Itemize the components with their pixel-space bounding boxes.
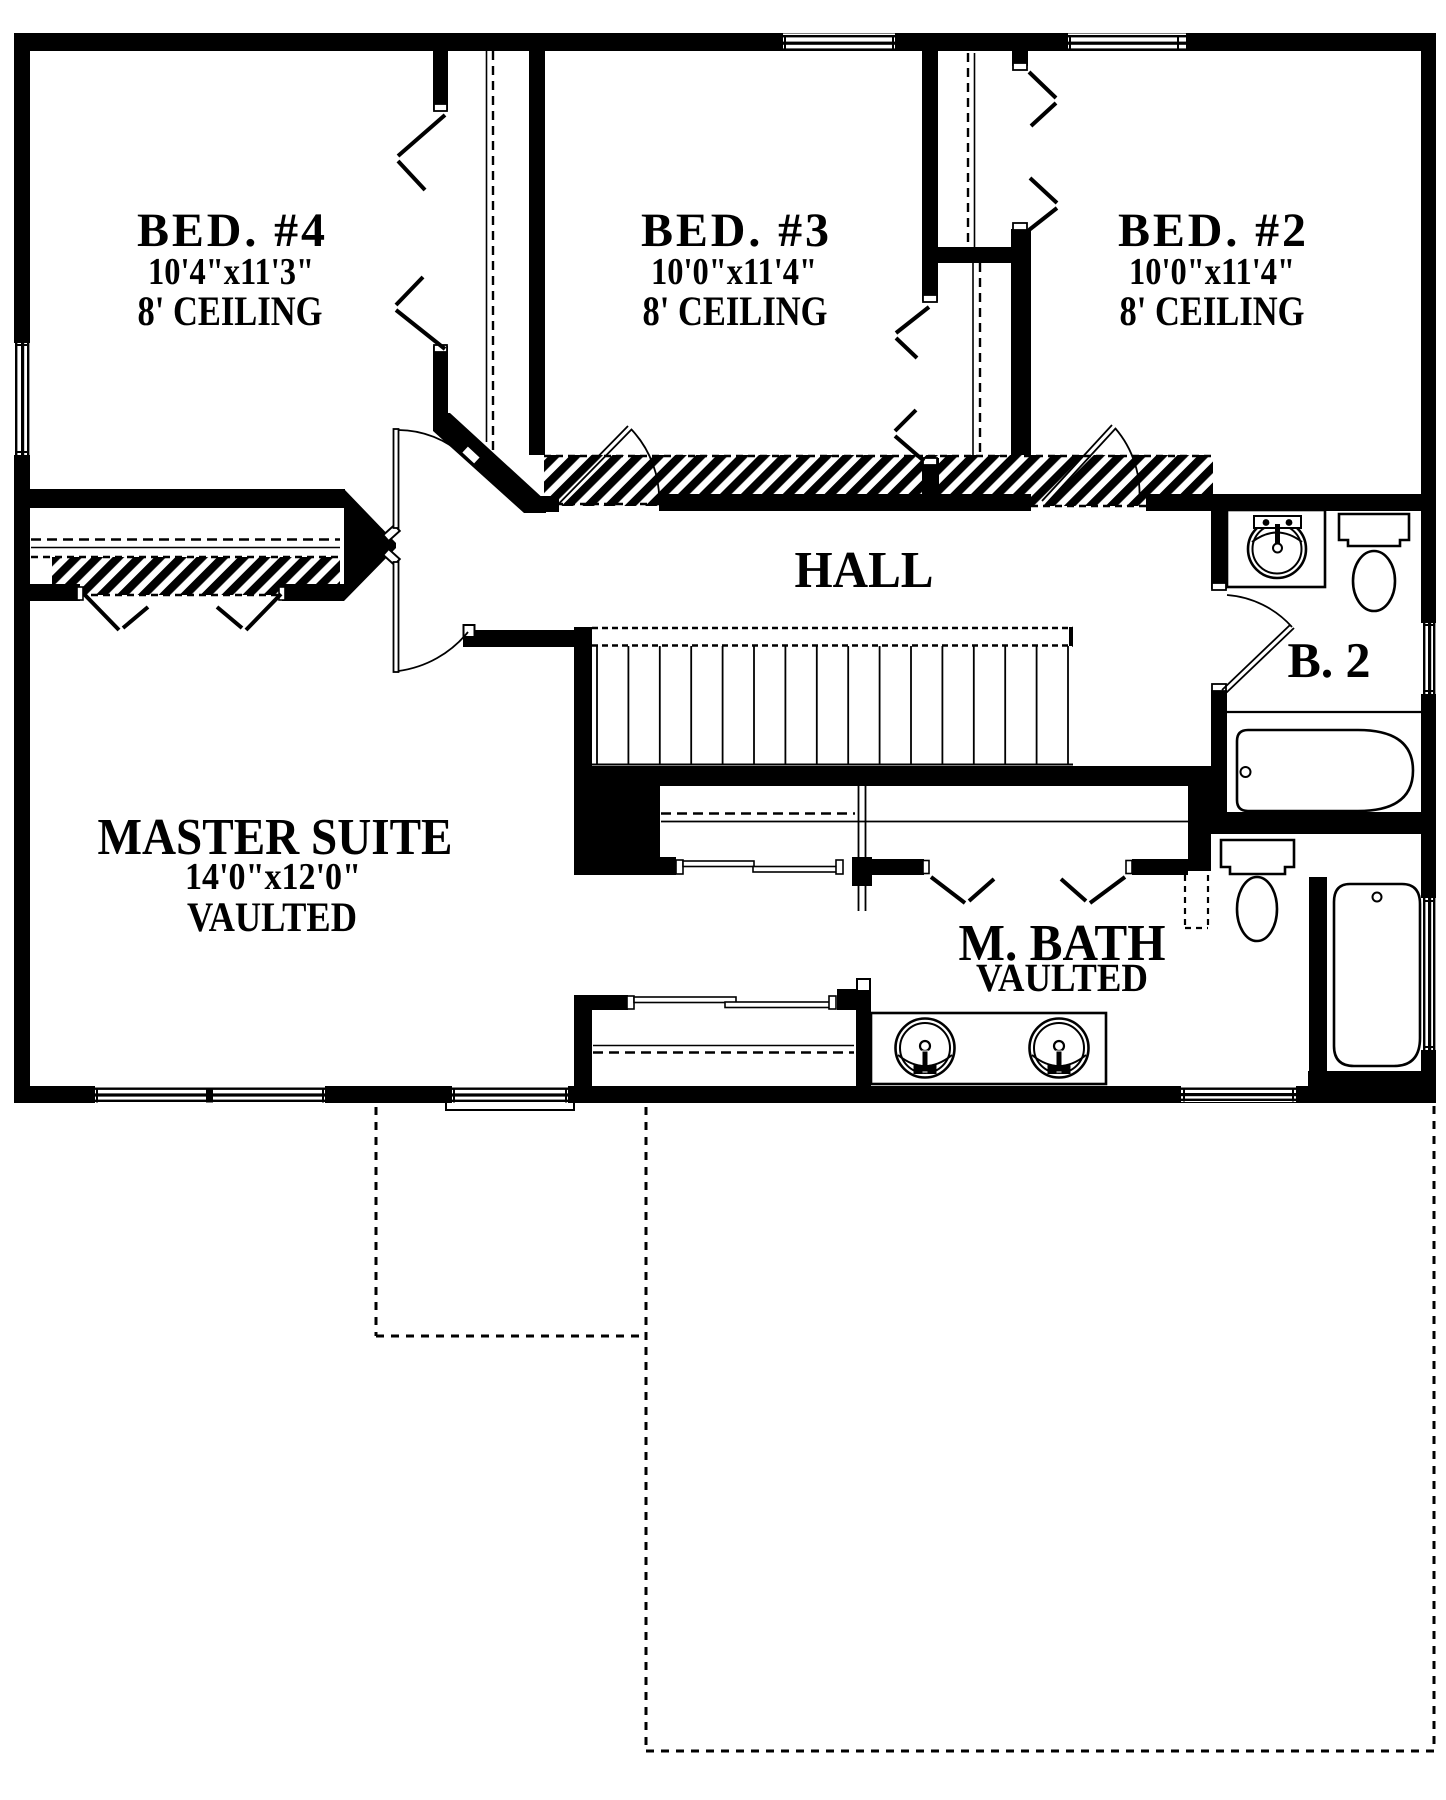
svg-text:VAULTED: VAULTED [187,895,357,941]
svg-text:8' CEILING: 8' CEILING [1120,289,1305,335]
svg-text:BED. #3: BED. #3 [641,204,829,257]
svg-text:B. 2: B. 2 [1288,632,1371,688]
svg-text:HALL: HALL [795,542,934,599]
svg-text:14'0"x12'0": 14'0"x12'0" [185,856,361,898]
svg-text:10'4"x11'3": 10'4"x11'3" [148,251,314,293]
svg-text:BED. #4: BED. #4 [137,204,325,257]
svg-text:8' CEILING: 8' CEILING [643,289,828,335]
svg-text:8' CEILING: 8' CEILING [138,289,323,335]
svg-text:10'0"x11'4": 10'0"x11'4" [651,251,817,293]
svg-text:VAULTED: VAULTED [976,955,1148,1000]
svg-text:BED. #2: BED. #2 [1118,204,1306,257]
svg-text:10'0"x11'4": 10'0"x11'4" [1129,251,1295,293]
